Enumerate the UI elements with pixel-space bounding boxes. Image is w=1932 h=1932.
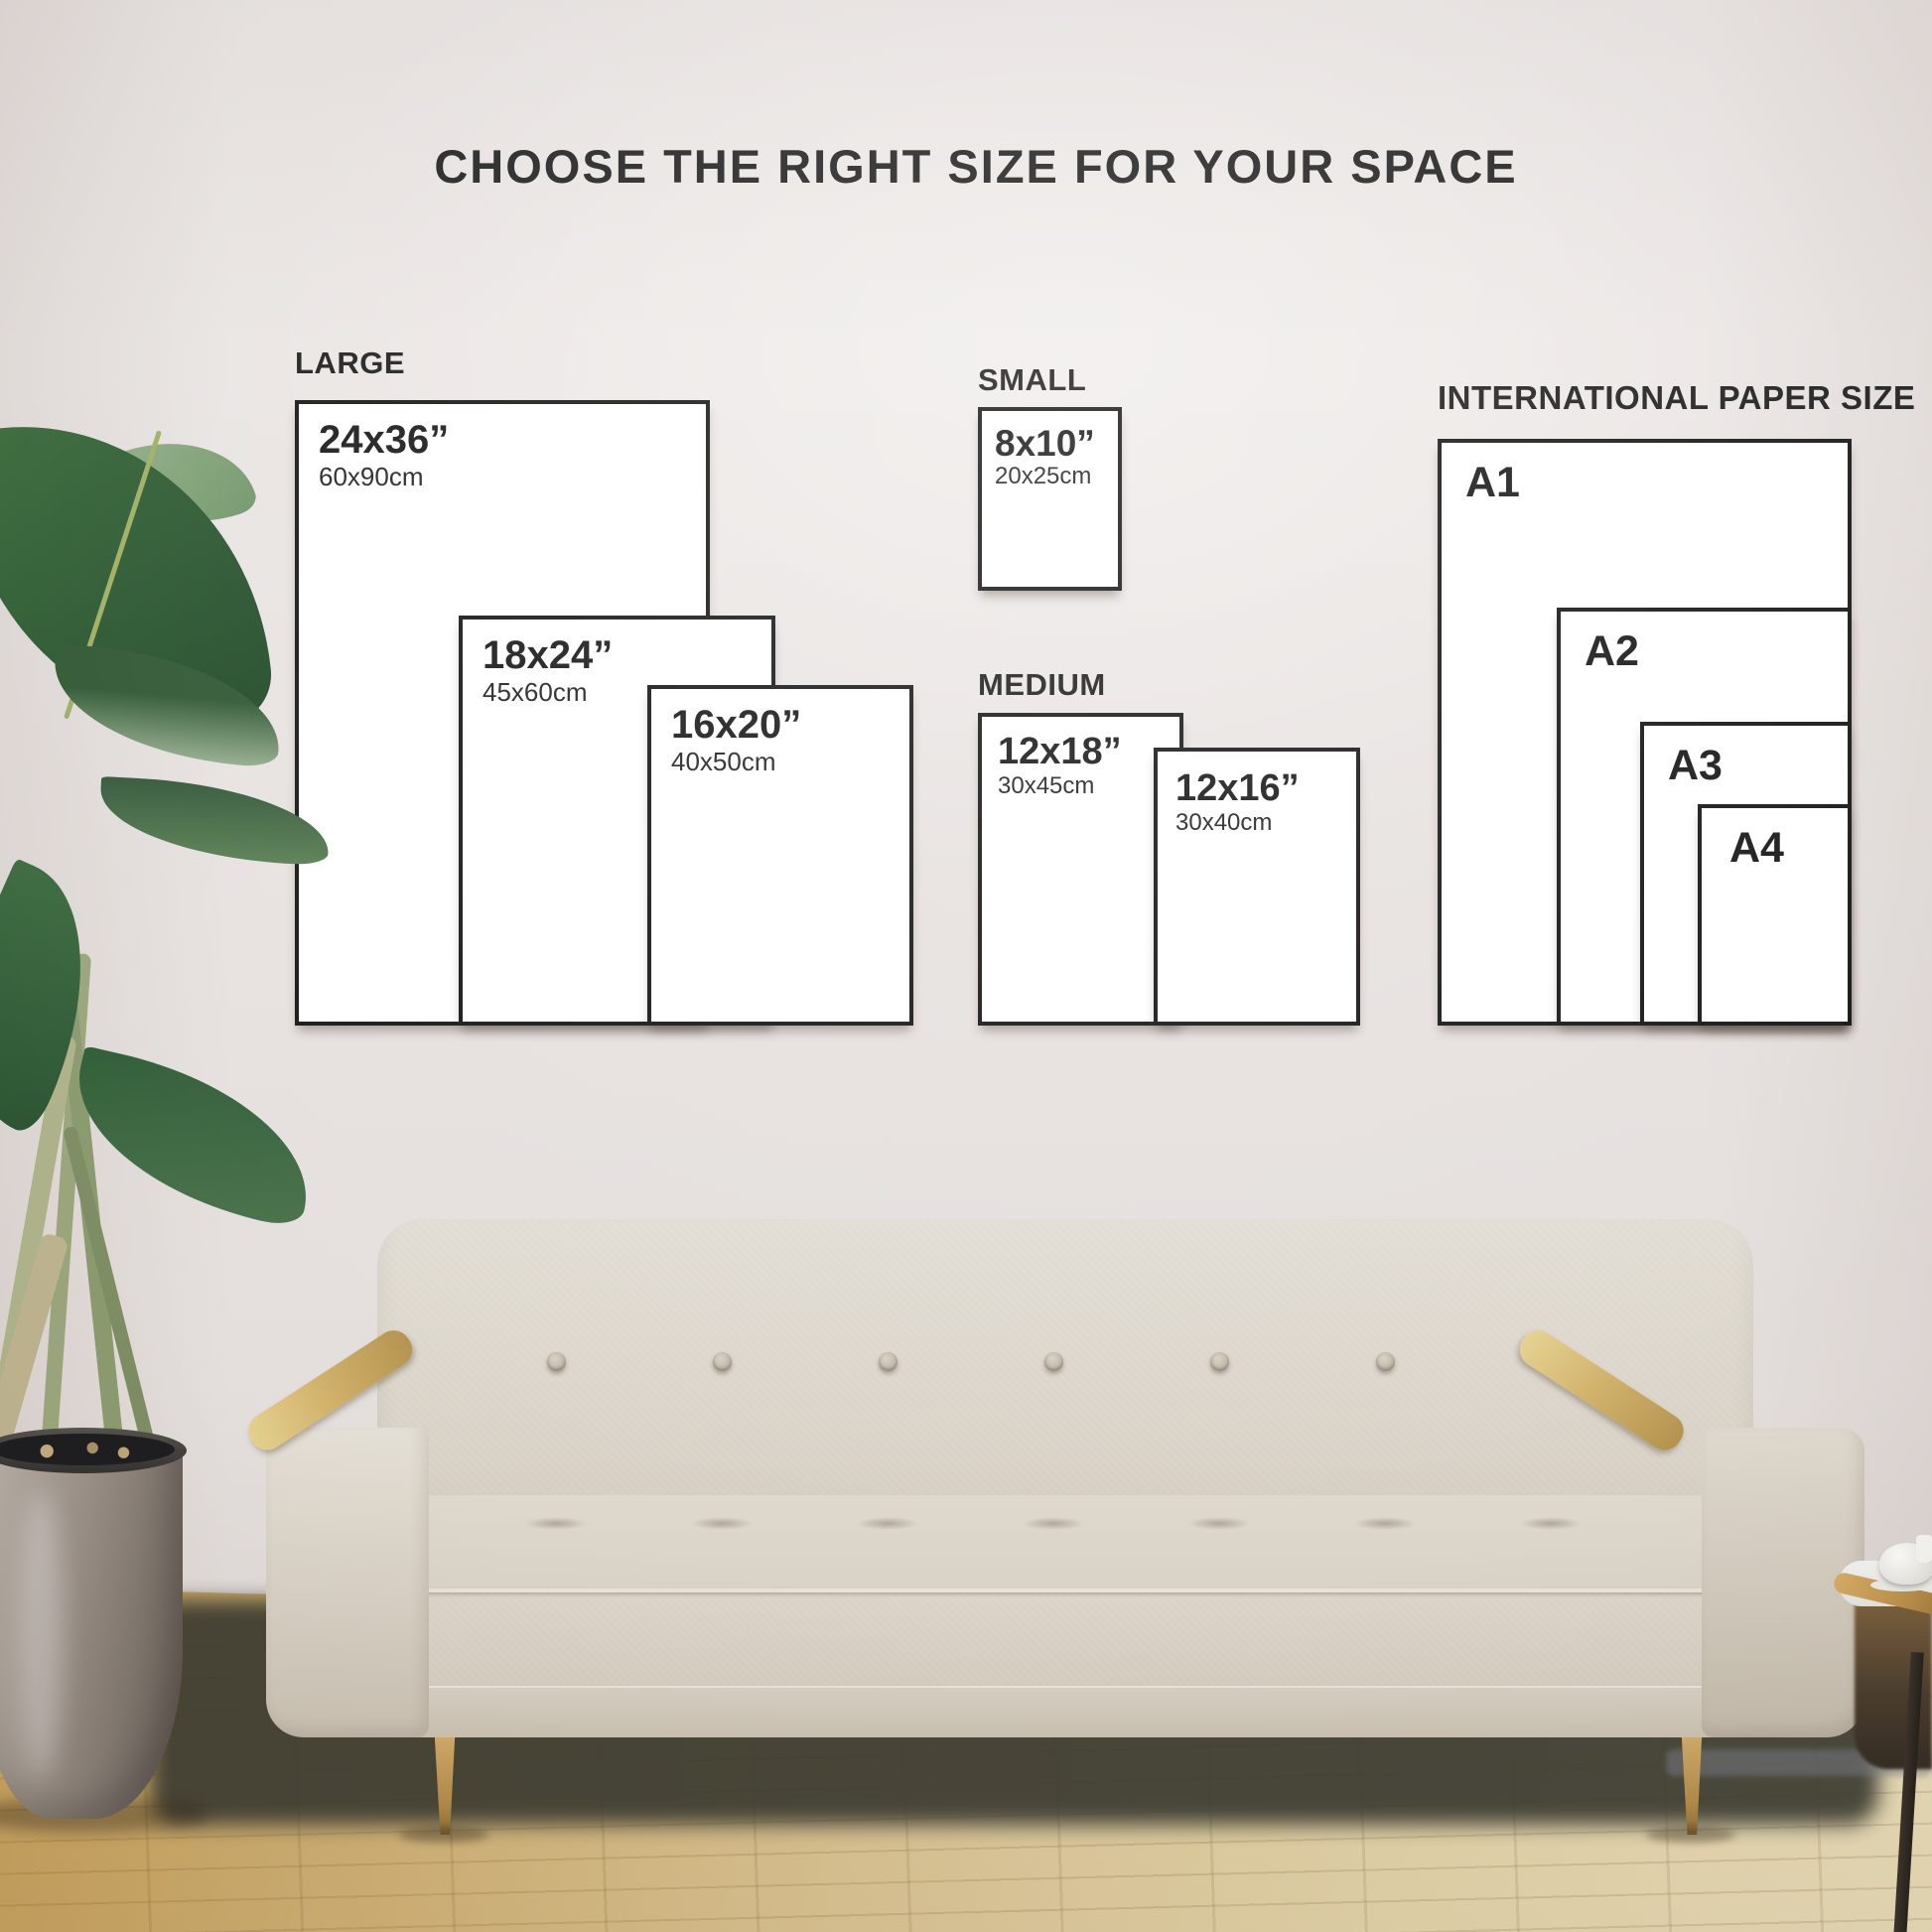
size-name-a2: A2 bbox=[1561, 612, 1848, 676]
sofa-tuft-button bbox=[547, 1352, 566, 1371]
poster-16x20: 16x20” 40x50cm bbox=[647, 685, 913, 1026]
sofa-seat-dimple bbox=[857, 1517, 918, 1530]
group-label-international: INTERNATIONAL PAPER SIZE bbox=[1438, 379, 1915, 417]
sofa-seat-cushion bbox=[395, 1495, 1775, 1594]
sofa-seat-dimple bbox=[525, 1517, 587, 1530]
sofa-piping bbox=[389, 1588, 1761, 1592]
size-inches-18x24: 18x24” bbox=[483, 633, 771, 678]
sofa-seat-dimple bbox=[1188, 1517, 1250, 1530]
size-inches-24x36: 24x36” bbox=[319, 418, 706, 463]
sofa-seat-dimple bbox=[691, 1517, 753, 1530]
sofa-base bbox=[377, 1688, 1773, 1737]
size-cm-8x10: 20x25cm bbox=[995, 464, 1118, 490]
size-name-a4: A4 bbox=[1702, 808, 1848, 873]
sofa-tuft-button bbox=[1210, 1352, 1229, 1371]
sofa-leg-shadow bbox=[399, 1827, 488, 1843]
sofa-armrest-left bbox=[266, 1428, 429, 1737]
sofa-seat-front bbox=[377, 1590, 1773, 1692]
sofa-seat-dimple bbox=[1520, 1517, 1582, 1530]
poster-12x16: 12x16” 30x40cm bbox=[1154, 748, 1360, 1026]
size-inches-12x16: 12x16” bbox=[1175, 767, 1356, 810]
white-cup bbox=[1916, 1535, 1932, 1563]
size-inches-16x20: 16x20” bbox=[671, 703, 909, 748]
sofa-leg-shadow bbox=[1646, 1827, 1735, 1843]
poster-a4: A4 bbox=[1698, 804, 1852, 1026]
size-inches-8x10: 8x10” bbox=[995, 423, 1118, 464]
size-guide-image: CHOOSE THE RIGHT SIZE FOR YOUR SPACE LAR… bbox=[0, 0, 1932, 1932]
sofa-tuft-button bbox=[879, 1352, 897, 1371]
sofa-tuft-button bbox=[1044, 1352, 1063, 1371]
size-cm-16x20: 40x50cm bbox=[671, 748, 909, 776]
size-name-a1: A1 bbox=[1442, 443, 1848, 507]
sofa-seat-dimple bbox=[1023, 1517, 1084, 1530]
group-label-medium: MEDIUM bbox=[978, 667, 1106, 703]
poster-8x10: 8x10” 20x25cm bbox=[978, 407, 1122, 591]
size-cm-12x16: 30x40cm bbox=[1175, 810, 1356, 837]
size-cm-24x36: 60x90cm bbox=[319, 463, 706, 491]
group-label-small: SMALL bbox=[978, 362, 1086, 398]
plant-pot-soil bbox=[0, 1434, 175, 1465]
poster-12x18: 12x18” 30x45cm bbox=[978, 713, 1183, 1026]
sofa-tuft-button bbox=[713, 1352, 732, 1371]
sofa-seat-dimple bbox=[1354, 1517, 1416, 1530]
size-inches-12x18: 12x18” bbox=[998, 731, 1179, 773]
page-title: CHOOSE THE RIGHT SIZE FOR YOUR SPACE bbox=[281, 139, 1671, 194]
plant-pot-highlight bbox=[18, 1489, 64, 1777]
size-name-a3: A3 bbox=[1644, 726, 1848, 790]
size-cm-12x18: 30x45cm bbox=[998, 773, 1179, 800]
sofa-tuft-button bbox=[1376, 1352, 1395, 1371]
group-label-large: LARGE bbox=[295, 345, 405, 381]
